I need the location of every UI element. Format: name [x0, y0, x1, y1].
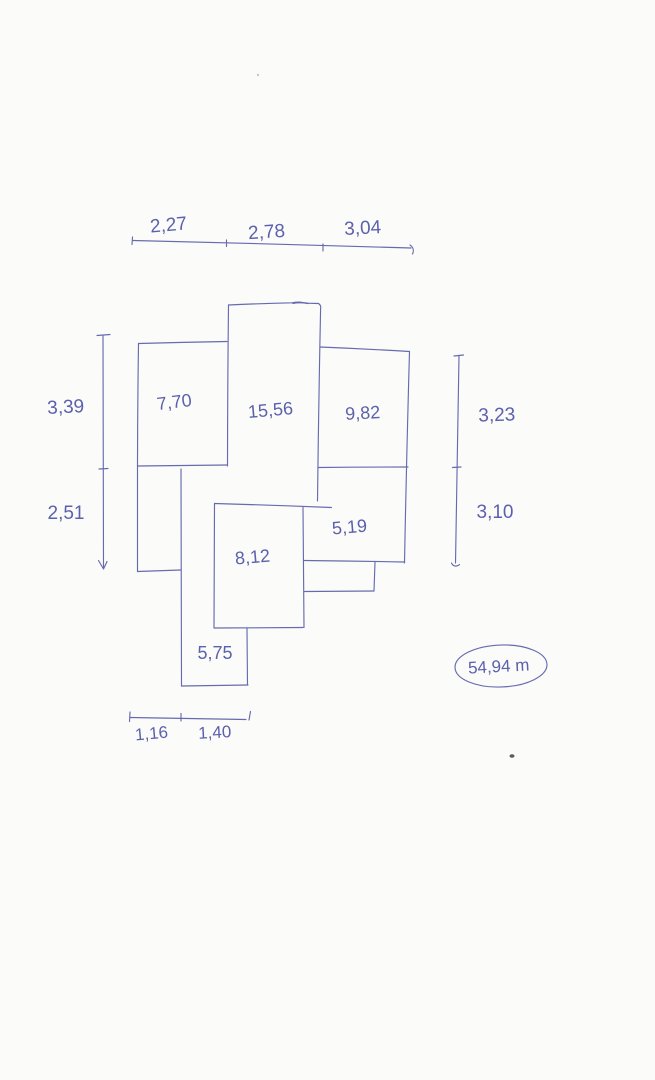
svg-text:8,12: 8,12: [234, 546, 271, 569]
svg-text:3,39: 3,39: [47, 396, 85, 419]
svg-text:54,94 m: 54,94 m: [468, 655, 530, 677]
svg-text:7,70: 7,70: [156, 390, 193, 414]
svg-text:2,27: 2,27: [149, 213, 188, 237]
svg-text:3,23: 3,23: [478, 404, 516, 426]
svg-text:1,16: 1,16: [134, 723, 169, 745]
svg-text:9,82: 9,82: [345, 402, 381, 424]
svg-text:5,19: 5,19: [331, 516, 368, 539]
svg-text:5,75: 5,75: [197, 643, 232, 663]
svg-text:3,04: 3,04: [344, 217, 382, 240]
svg-text:3,10: 3,10: [477, 502, 514, 523]
svg-text:15,56: 15,56: [247, 398, 294, 422]
svg-text:1,40: 1,40: [198, 722, 232, 743]
svg-text:2,78: 2,78: [247, 221, 285, 245]
svg-text:2,51: 2,51: [48, 503, 85, 524]
